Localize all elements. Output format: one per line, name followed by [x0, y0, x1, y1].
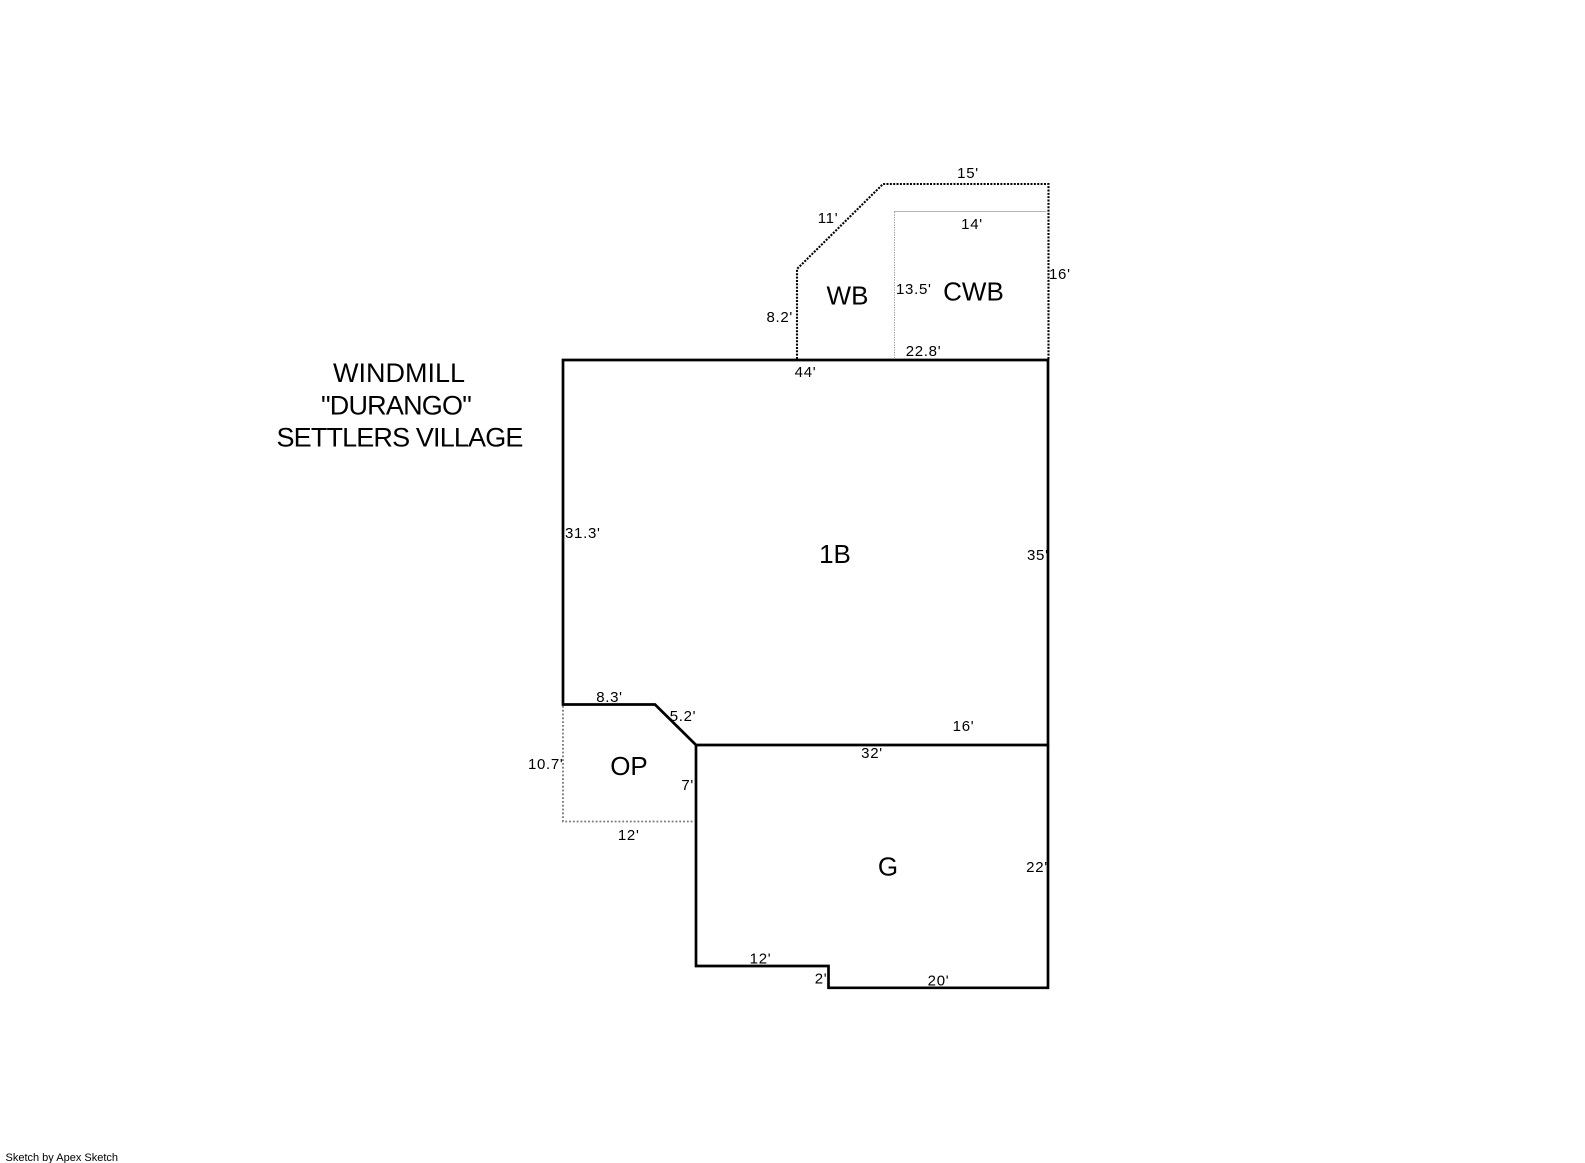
svg-text:16': 16'	[953, 718, 975, 735]
svg-text:15': 15'	[957, 165, 979, 182]
svg-text:10.7': 10.7'	[528, 756, 564, 773]
svg-text:11': 11'	[818, 210, 839, 227]
svg-text:2': 2'	[815, 970, 828, 987]
svg-text:OP: OP	[610, 751, 648, 781]
svg-text:7': 7'	[681, 777, 694, 794]
svg-text:16': 16'	[1049, 266, 1071, 283]
svg-text:32': 32'	[861, 745, 883, 762]
svg-text:12': 12'	[618, 827, 640, 844]
svg-text:G: G	[878, 852, 898, 882]
svg-text:8.3': 8.3'	[596, 689, 623, 706]
svg-text:12': 12'	[750, 950, 772, 967]
svg-text:1B: 1B	[819, 539, 851, 569]
svg-text:SETTLERS VILLAGE: SETTLERS VILLAGE	[277, 423, 523, 453]
svg-text:"DURANGO": "DURANGO"	[321, 391, 471, 421]
svg-text:WINDMILL: WINDMILL	[333, 358, 465, 388]
svg-text:5.2': 5.2'	[670, 708, 697, 725]
svg-text:20': 20'	[928, 973, 950, 990]
svg-text:13.5': 13.5'	[896, 281, 932, 298]
svg-text:Sketch by Apex Sketch: Sketch by Apex Sketch	[6, 1152, 119, 1163]
svg-text:31.3': 31.3'	[565, 525, 601, 542]
svg-text:35': 35'	[1027, 547, 1049, 564]
svg-text:22.8': 22.8'	[906, 343, 942, 360]
svg-text:14': 14'	[961, 216, 983, 233]
svg-text:CWB: CWB	[943, 277, 1004, 307]
svg-text:44': 44'	[795, 364, 817, 381]
svg-text:22': 22'	[1026, 859, 1048, 876]
svg-text:8.2': 8.2'	[766, 309, 793, 326]
svg-text:WB: WB	[827, 281, 869, 311]
